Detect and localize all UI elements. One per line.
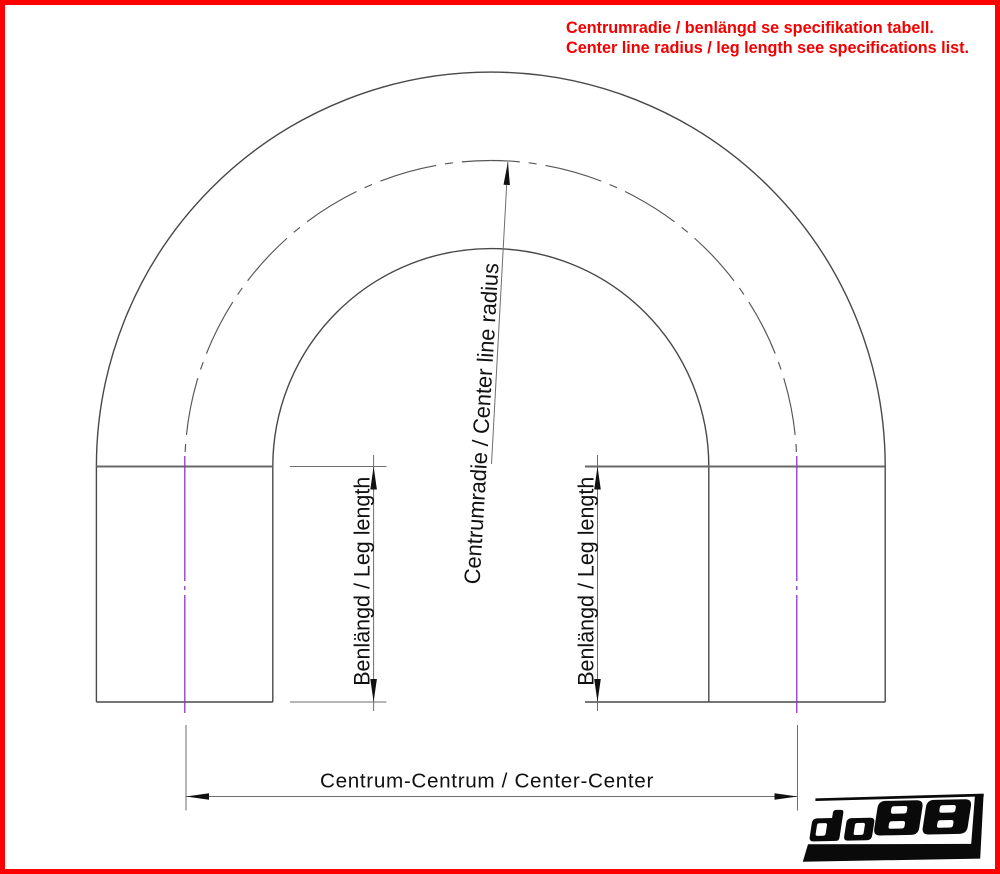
svg-text:Centrumradie / benlängd se spe: Centrumradie / benlängd se specifikation…: [566, 19, 934, 37]
svg-text:Center line radius / leg lengt: Center line radius / leg length see spec…: [566, 39, 969, 57]
svg-text:Benlängd / Leg length: Benlängd / Leg length: [573, 477, 599, 686]
svg-text:Centrum-Centrum / Center-Cente: Centrum-Centrum / Center-Center: [320, 770, 654, 793]
svg-text:Benlängd / Leg length: Benlängd / Leg length: [349, 477, 375, 686]
